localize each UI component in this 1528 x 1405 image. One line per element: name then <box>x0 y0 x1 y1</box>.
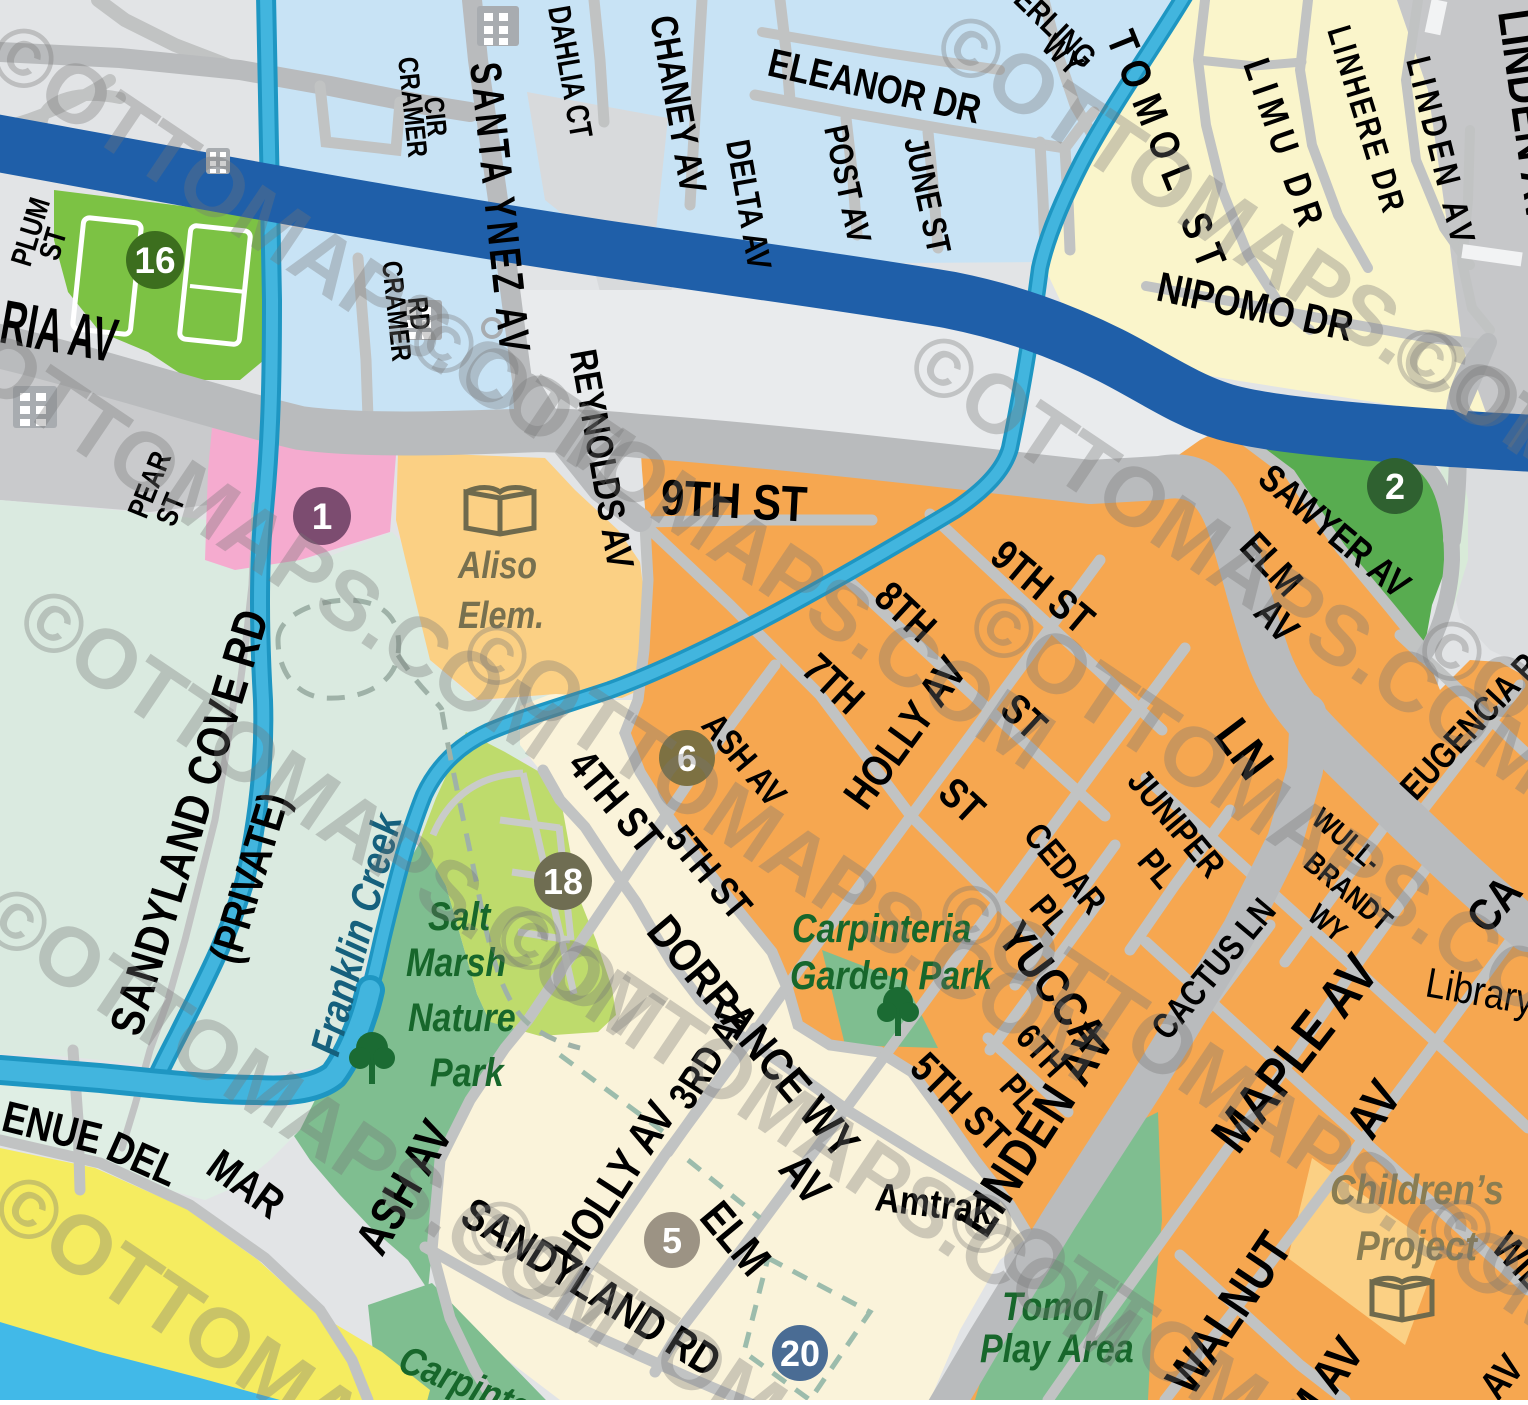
svg-text:Aliso: Aliso <box>457 545 537 587</box>
svg-text:Nature: Nature <box>408 994 516 1039</box>
svg-text:CIR: CIR <box>417 95 452 138</box>
svg-text:5: 5 <box>662 1220 682 1261</box>
svg-text:16: 16 <box>134 240 175 281</box>
svg-text:2: 2 <box>1385 466 1405 507</box>
svg-text:Park: Park <box>430 1049 506 1094</box>
